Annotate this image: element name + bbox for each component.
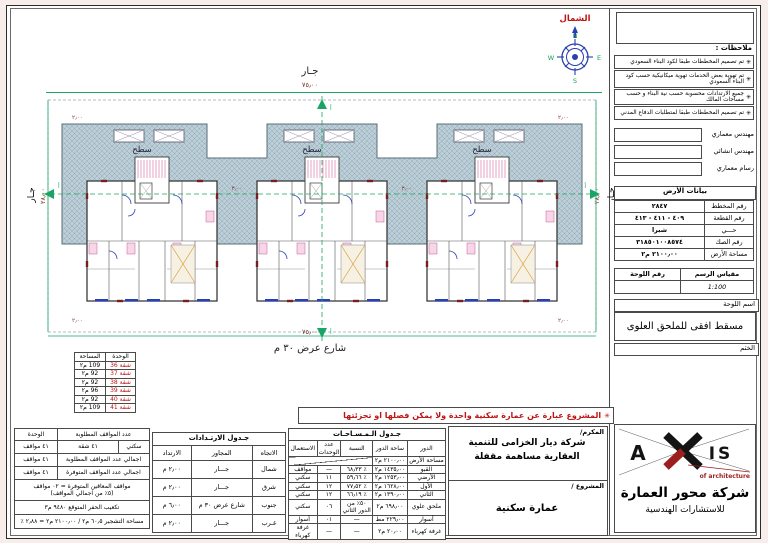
legend-unit: شقة 36 <box>106 361 136 370</box>
staff-label: رسام معماري <box>702 162 754 176</box>
areas-land-value: ٢١٠٠٫٠٠ م٢ <box>373 457 408 466</box>
land-data-title: بيانات الأرض <box>614 186 756 200</box>
legend-unit: شقة 40 <box>106 395 136 404</box>
note-asterisk-icon: ✳ <box>746 76 751 83</box>
company-block: A IS of architecture شركة محور العمارة ل… <box>614 424 756 533</box>
areas-row: الأول١٦٢٨٫٠٠ م٢٪ ٧٧٫٥٢١٢سكني <box>289 482 446 491</box>
setbacks-row: شمالجـــار٢٫٠٠ م <box>153 461 286 479</box>
compass-rose-icon: N S W E <box>544 24 606 84</box>
areas-table: جـدول الـمـسـاحـات الدور ساحة الدور النس… <box>288 428 446 540</box>
scale-sheet-table: مقياس الرسم رقم اللوحة 1:100 <box>614 268 754 294</box>
areas-header-use: الاستعمال <box>289 441 318 457</box>
areas-row: الثاني١٣٩٠٫٠٠ م٢٪ ٦٦٫١٩١٢سكني <box>289 491 446 500</box>
staff-row: رسام معماري <box>614 162 754 176</box>
disabled-parking-line1: مواقف المعاقين المتوفرة = ٠٢ مواقف <box>16 483 148 491</box>
compass: الشمال N S W E <box>544 14 606 84</box>
legend-row: شقة 4092 م٢ <box>75 395 136 404</box>
areas-land-slash <box>289 457 373 466</box>
legend-area: 96 م٢ <box>75 387 106 396</box>
areas-row: الأرضي١٢٥٣٫٠٠ م٢٪ ٥٩٫٦٦١١سكني <box>289 474 446 483</box>
notes-title: ملاحظات : <box>616 44 752 52</box>
notes-list: ✳ تم تصميم المخططات طبقا لكود البناء الس… <box>614 55 754 120</box>
areas-land-label: مساحة الأرض <box>407 457 445 466</box>
legend-area: 92 م٢ <box>75 378 106 387</box>
parking-header-required: عدد المواقف المطلوبة <box>58 429 150 441</box>
legend-unit: شقة 39 <box>106 387 136 396</box>
disabled-parking-line2: (٥٪ من اجمالي المواقف) <box>16 490 148 498</box>
note-text: تم تصميم المخططات طبقا لكود البناء السعو… <box>630 59 744 65</box>
owner-name: شركة ديار الخزامى للتنمية العقارية مساهم… <box>453 437 601 464</box>
note-asterisk-icon: ✳ <box>746 110 751 117</box>
project-label: المشروع / <box>571 482 604 490</box>
apartment-legend-table: الوحدة المساحة شقة 36109 م٢ شقة 3792 م٢ … <box>74 352 136 413</box>
land-data-row: مساحة الأرض٢١٠٠٫٠٠ م٢ <box>615 249 754 261</box>
section-marker-top: أ <box>330 104 332 112</box>
staff-label: مهندس انشائي <box>702 145 754 159</box>
legend-unit: شقة 37 <box>106 370 136 379</box>
neighbor-top-label: جـار <box>200 66 420 77</box>
titleblock-divider <box>609 8 610 535</box>
compass-e: E <box>597 54 601 62</box>
company-name: شركة محور العمارة <box>615 485 755 501</box>
legend-row: شقة 41109 م٢ <box>75 404 136 413</box>
section-marker-left: أ <box>58 182 60 190</box>
scale-label: مقياس الرسم <box>681 269 754 281</box>
stamp-label: الختم <box>614 343 759 356</box>
staff-signature-box <box>614 128 702 142</box>
north-label: الشمال <box>544 14 606 24</box>
legend-area: 109 م٢ <box>75 361 106 370</box>
setbacks-header-val: الارتداد <box>153 446 192 461</box>
dim-setback-bl: ٢٫٠٠ <box>72 318 83 324</box>
areas-row: القبو١٤٣٥٫٠٠ م٢٪ ٦٨٫٣٣—مواقف <box>289 465 446 474</box>
stamp-area <box>614 356 754 420</box>
areas-row: غرفة كهرباء٢٠٫٠٠ م٢——غرفة كهرباء <box>289 524 446 540</box>
legend-row: شقة 3792 م٢ <box>75 370 136 379</box>
areas-header-units: عدد الوحدات <box>317 441 341 457</box>
note-row: ✳ تم تهوية بعض الخدمات تهوية ميكانيكية ح… <box>614 70 754 88</box>
land-data-table: رقم المخطط٢٨٤٧ رقم القطعة٤٠٩ - ٤١١ - ٤١٣… <box>614 200 754 261</box>
sheet-no-value <box>615 281 681 294</box>
parking-row-excavation: تكعيب الحفر المتوقع ٩٤٨٠ م٣ <box>15 501 150 515</box>
note-asterisk-icon: ✳ <box>746 94 751 101</box>
land-data-row: رقم القطعة٤٠٩ - ٤١١ - ٤١٣ <box>615 213 754 225</box>
staff-row: مهندس انشائي <box>614 145 754 159</box>
note-text: تم تهوية بعض الخدمات تهوية ميكانيكية حسب… <box>617 73 744 85</box>
legend-row: شقة 3892 م٢ <box>75 378 136 387</box>
areas-header-ratio: النسبة <box>341 441 373 457</box>
legend-area: 92 م٢ <box>75 395 106 404</box>
dim-setback-tr: ٢٫٠٠ <box>558 115 569 121</box>
setbacks-table: جـدول الارتـدادات الاتجاه المجاور الارتد… <box>152 432 286 533</box>
logo-letter-a: A <box>630 441 646 465</box>
dim-setback-br: ٢٫٠٠ <box>558 318 569 324</box>
logo-tagline: of architecture <box>700 473 750 479</box>
parking-header-unit: الوحدة <box>15 429 58 441</box>
scale-value: 1:100 <box>681 281 754 294</box>
note-text: تم تصميم المخططات طبقا لمتطلبات الدفاع ا… <box>620 110 744 116</box>
axis-logo-icon: A IS of architecture <box>616 427 754 479</box>
staff-signature-box <box>614 162 702 176</box>
compass-s: S <box>573 77 577 84</box>
legend-area: 109 م٢ <box>75 404 106 413</box>
staff-signature-box <box>614 145 702 159</box>
parking-row-landscape: مساحة التشجير ٦٠٫٥ م٢ / ٢١٠٠٫٠٠ م٢ = ٢٫٨… <box>15 515 150 529</box>
dim-line-top <box>46 92 602 93</box>
dim-setback-tl: ٢٫٠٠ <box>72 115 83 121</box>
compass-n: N <box>573 32 578 40</box>
setbacks-row: شرقجـــار٢٫٠٠ م <box>153 479 286 497</box>
roof-label-2: سطح <box>302 145 322 155</box>
setbacks-row: غـربجـــار٢٫٠٠ م <box>153 515 286 533</box>
compass-w: W <box>548 54 555 62</box>
owner-project-block: المكرم/ شركة ديار الخزامى للتنمية العقار… <box>448 426 608 536</box>
staff-row: مهندس معماري <box>614 128 754 142</box>
land-data-row: رقم المخطط٢٨٤٧ <box>615 201 754 213</box>
sheet-no-label: رقم اللوحة <box>615 269 681 281</box>
staff-rows: مهندس معماري مهندس انشائي رسام معماري <box>614 128 754 176</box>
parking-row-residential: سكني ٤١ شقة ٤١ مواقف <box>15 441 150 454</box>
parking-row-required-total: اجمالي عدد المواقف المطلوبة ٤١ مواقف <box>15 454 150 467</box>
parking-row-available-total: اجمالي عدد المواقف المتوفرة ٤١ مواقف <box>15 467 150 480</box>
areas-header-area: ساحة الدور <box>373 441 408 457</box>
note-asterisk-icon: ✳ <box>746 59 751 66</box>
areas-row: أسوار٢٢٩٫٠٠ مط—٠١أسوار <box>289 515 446 524</box>
legend-unit: شقة 38 <box>106 378 136 387</box>
legend-area: 92 م٢ <box>75 370 106 379</box>
asterisk-icon: ✳ <box>604 412 610 420</box>
staff-label: مهندس معماري <box>702 128 754 142</box>
areas-table-title: جـدول الـمـسـاحـات <box>289 429 446 441</box>
note-row: ✳ تم تصميم المخططات طبقا لمتطلبات الدفاع… <box>614 106 754 120</box>
dim-top: ٧٥٫٠٠ <box>200 81 420 89</box>
setbacks-title: جـدول الارتـدادات <box>153 433 286 446</box>
setbacks-header-dir: الاتجاه <box>252 446 285 461</box>
neighbor-left-label: جـار <box>27 175 37 215</box>
legend-row: شقة 3996 م٢ <box>75 387 136 396</box>
legend-row: شقة 36109 م٢ <box>75 361 136 370</box>
parking-table: عدد المواقف المطلوبة الوحدة سكني ٤١ شقة … <box>14 428 150 529</box>
owner-label: المكرم/ <box>580 428 604 436</box>
areas-row: ملحق علوي٦٩٨٫٠٠ م٢٥٠٪ من الدور الثاني٠٦س… <box>289 499 446 515</box>
revision-box <box>616 12 754 44</box>
drawing-sheet: { "colors":{"accent_green":"#19a564","no… <box>0 0 768 543</box>
company-subtitle: للاستشارات الهندسية <box>615 505 755 515</box>
legend-unit: شقة 41 <box>106 404 136 413</box>
areas-header-floor: الدور <box>407 441 445 457</box>
roof-label-1: سطح <box>132 145 152 155</box>
land-data-row: رقم الصك٣١٨٥٠١٠٠٨٥٧٤ <box>615 237 754 249</box>
dim-gap-2: ٣٫٠٠ <box>402 186 413 192</box>
note-row: ✳ جميع الارتدادات محسوبة حسب نية البناء … <box>614 89 754 105</box>
logo-letters-is: IS <box>709 444 734 464</box>
project-name: عمارة سكنية <box>453 503 601 514</box>
dim-bottom: ٧٥٫٠٠ <box>210 328 410 336</box>
note-text: جميع الارتدادات محسوبة حسب نية البناء و … <box>617 91 744 103</box>
setbacks-header-adj: المجاور <box>191 446 252 461</box>
dim-gap-1: ٣٫٠٠ <box>232 186 243 192</box>
sheet-name: مسقط افقى للملحق العلوى <box>614 312 756 341</box>
legend-header-area: المساحة <box>75 353 106 362</box>
setbacks-row: جنوبشارع عرض ٣٠ م٦٫٠٠ م <box>153 497 286 515</box>
sheet-name-label: اسم اللوحة <box>614 299 759 312</box>
legend-header-unit: الوحدة <box>106 353 136 362</box>
street-label: شارع عرض ٣٠ م <box>190 343 430 354</box>
parking-row-disabled: مواقف المعاقين المتوفرة = ٠٢ مواقف (٥٪ م… <box>15 480 150 501</box>
project-note-text: المشروع عبارة عن عمارة سكنية واحدة ولا ي… <box>343 411 601 420</box>
note-row: ✳ تم تصميم المخططات طبقا لكود البناء الس… <box>614 55 754 69</box>
section-marker-right: أ <box>584 182 586 190</box>
floor-plan: سطح سطح سطح أ أ أ أ ٢٫٠٠ ٢٫٠٠ ٢٫٠٠ ٢٫٠٠ … <box>42 96 602 341</box>
land-data-row: حـــيشبرا <box>615 225 754 237</box>
project-note-banner: ✳ المشروع عبارة عن عمارة سكنية واحدة ولا… <box>298 407 614 424</box>
roof-label-3: سطح <box>472 145 492 155</box>
